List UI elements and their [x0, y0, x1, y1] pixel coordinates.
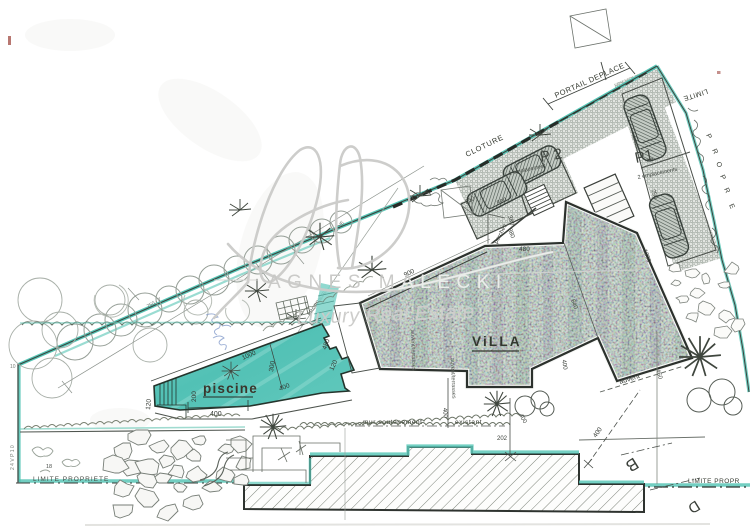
svg-text:10: 10 [10, 364, 16, 370]
svg-text:120: 120 [145, 398, 153, 410]
svg-text:piscine: piscine [203, 381, 258, 396]
svg-text:LIMITE PROPR: LIMITE PROPR [688, 478, 740, 485]
svg-text:LIMITE PROPRIETE: LIMITE PROPRIETE [33, 476, 109, 483]
svg-text:480: 480 [519, 246, 530, 253]
svg-text:ViLLA: ViLLA [472, 334, 522, 349]
svg-text:2 4 V P 1 0: 2 4 V P 1 0 [10, 445, 16, 470]
svg-text:400: 400 [441, 408, 448, 419]
svg-text:202: 202 [497, 436, 508, 442]
svg-text:18: 18 [46, 464, 52, 470]
svg-text:200: 200 [191, 391, 198, 402]
